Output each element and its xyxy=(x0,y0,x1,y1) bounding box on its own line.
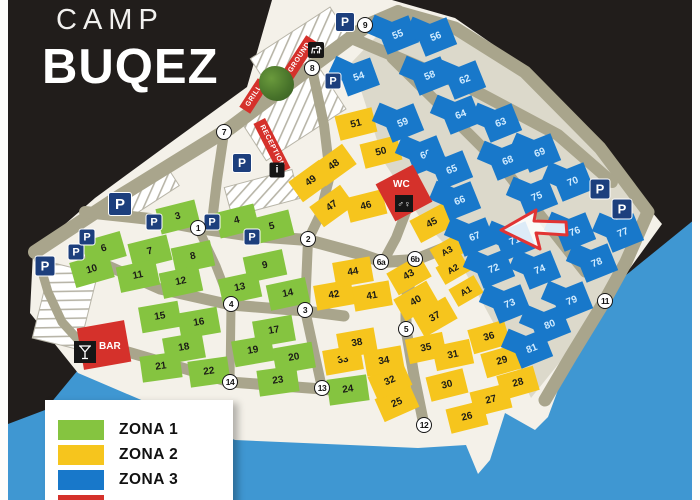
parking-sign: P xyxy=(232,153,252,173)
road-marker-13: 13 xyxy=(314,380,330,396)
parking-sign: P xyxy=(79,229,96,246)
parking-sign: P xyxy=(335,12,355,32)
plot-15: 15 xyxy=(138,301,182,334)
wc-figures-icon: ♂♀ xyxy=(395,195,413,212)
plot-19: 19 xyxy=(231,335,275,368)
bar-label: BAR xyxy=(99,341,121,352)
road-marker-7: 7 xyxy=(216,124,232,140)
road-marker-2: 2 xyxy=(300,231,316,247)
legend-swatch xyxy=(58,495,104,500)
legend-card: ZONA 1ZONA 2ZONA 3 xyxy=(45,400,233,500)
road-marker-14: 14 xyxy=(222,374,238,390)
plot-56: 56 xyxy=(415,17,457,57)
road-marker-6a: 6a xyxy=(373,254,389,270)
road-marker-3: 3 xyxy=(297,302,313,318)
parking-sign: P xyxy=(325,73,342,90)
road-marker-4: 4 xyxy=(223,296,239,312)
plot-12: 12 xyxy=(159,265,204,299)
plot-54: 54 xyxy=(338,58,380,97)
camp-map: CAMP BUQEZ 34567891011121314151617181920… xyxy=(0,0,700,500)
road-marker-8: 8 xyxy=(304,60,320,76)
legend-label: ZONA 2 xyxy=(119,446,178,464)
legend-rows: ZONA 1ZONA 2ZONA 3 xyxy=(58,420,233,500)
parking-sign: P xyxy=(612,199,633,220)
road-marker-1: 1 xyxy=(190,220,206,236)
plot-24: 24 xyxy=(326,374,369,405)
info-point-icon: i xyxy=(270,163,285,178)
road-marker-11: 11 xyxy=(597,293,613,309)
dog-station-icon xyxy=(308,42,324,58)
legend-item-4 xyxy=(58,495,233,500)
tree-icon xyxy=(259,66,294,101)
parking-sign: P xyxy=(204,214,221,231)
legend-label: ZONA 1 xyxy=(119,421,178,439)
cocktail-icon xyxy=(74,341,96,363)
plot-62: 62 xyxy=(444,60,486,100)
legend-item-2: ZONA 2 xyxy=(58,445,233,465)
legend-swatch xyxy=(58,470,104,490)
road-marker-12: 12 xyxy=(416,417,432,433)
plot-64: 64 xyxy=(440,95,482,135)
road-marker-5: 5 xyxy=(398,321,414,337)
parking-sign: P xyxy=(244,229,261,246)
plot-70: 70 xyxy=(552,162,594,202)
legend-item-1: ZONA 1 xyxy=(58,420,233,440)
parking-sign: P xyxy=(35,256,56,277)
parking-sign: P xyxy=(68,244,85,261)
plot-30: 30 xyxy=(426,368,469,401)
wc-label: WC xyxy=(393,179,410,190)
legend-swatch xyxy=(58,445,104,465)
legend-swatch xyxy=(58,420,104,440)
plot-51: 51 xyxy=(335,107,378,140)
legend-label: ZONA 3 xyxy=(119,471,178,489)
plot-21: 21 xyxy=(139,351,182,382)
parking-sign: P xyxy=(590,179,611,200)
parking-sign: P xyxy=(108,192,132,216)
road-marker-9: 9 xyxy=(357,17,373,33)
plot-41: 41 xyxy=(351,280,393,311)
parking-sign: P xyxy=(146,214,163,231)
road-marker-6b: 6b xyxy=(407,251,423,267)
plot-23: 23 xyxy=(256,365,299,396)
legend-item-3: ZONA 3 xyxy=(58,470,233,490)
plot-11: 11 xyxy=(116,259,161,293)
